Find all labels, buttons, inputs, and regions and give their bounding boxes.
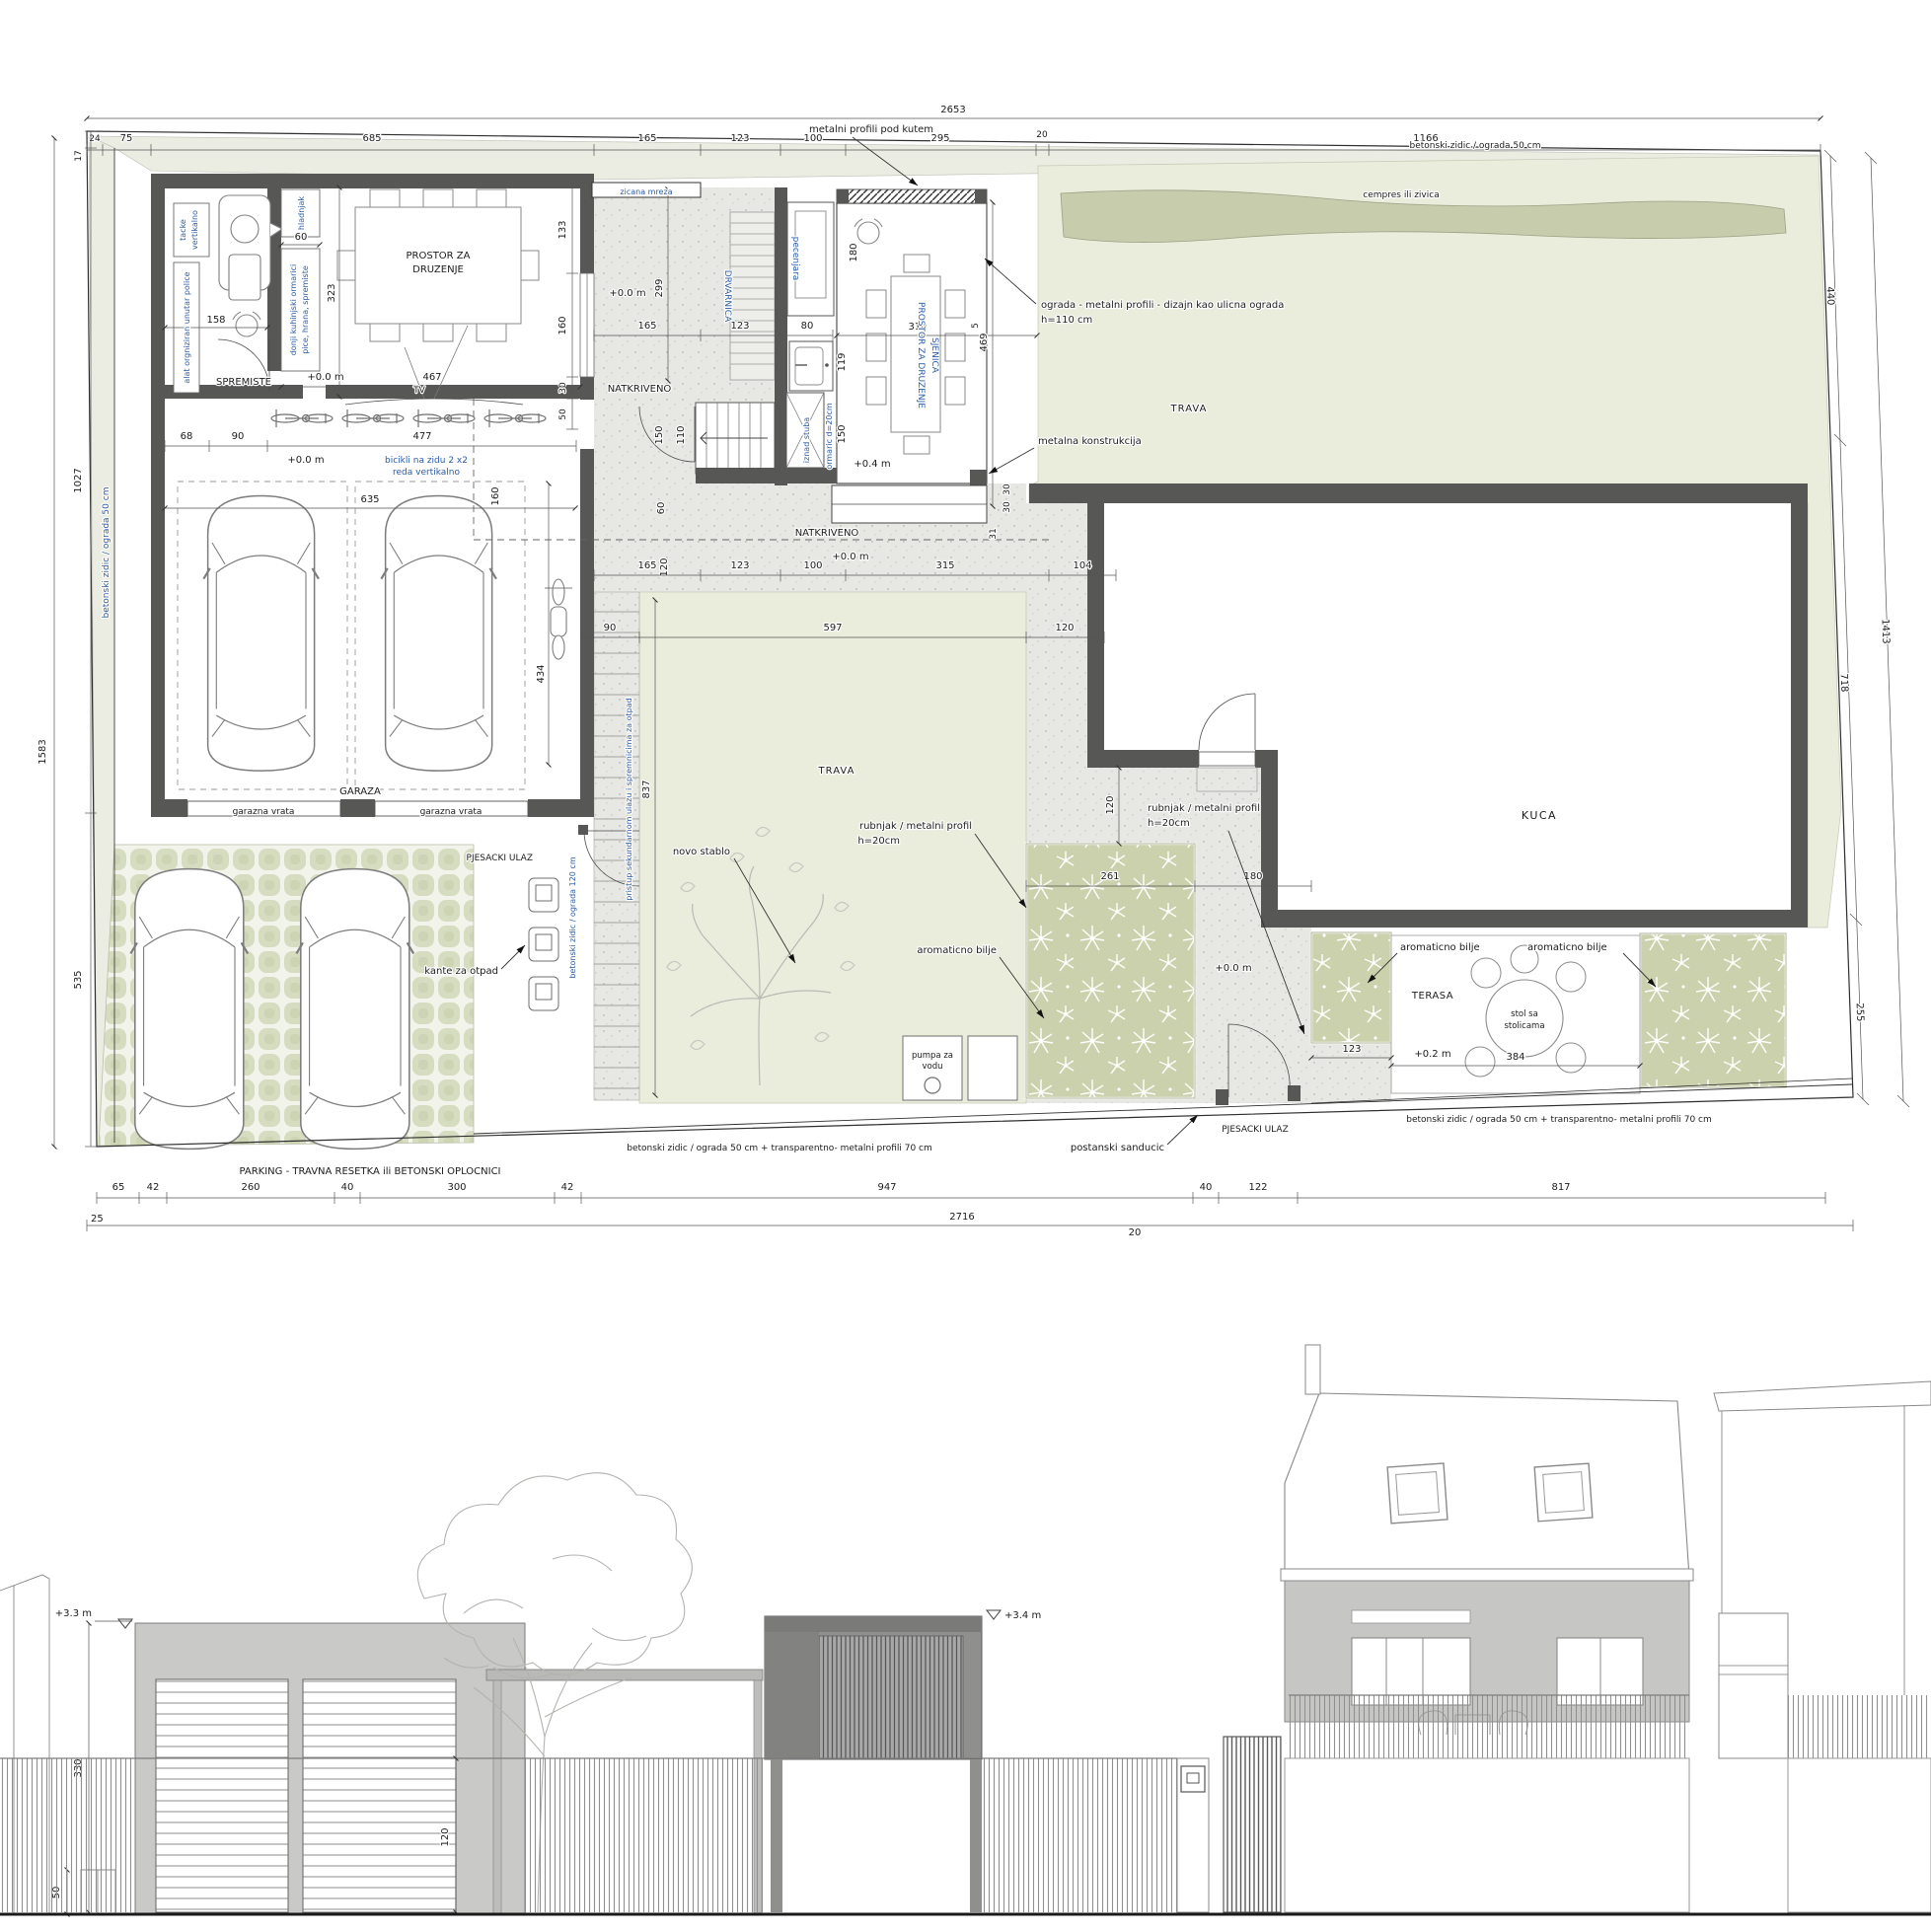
- dim: 120: [1105, 795, 1116, 814]
- annotation: vodu: [922, 1062, 942, 1072]
- annotation: TV: [412, 386, 425, 396]
- room-label: KUCA: [1522, 809, 1557, 822]
- dim: 315: [935, 560, 954, 571]
- dim: 467: [422, 372, 441, 383]
- dim: 80: [801, 321, 814, 332]
- annotation: garazna vrata: [233, 807, 295, 817]
- annotation: tacke: [179, 219, 187, 241]
- dim: 119: [837, 352, 848, 371]
- level-mark: +0.0 m: [609, 288, 645, 299]
- room-label: DRUZENJE: [412, 264, 464, 275]
- sjenica: [832, 189, 987, 523]
- annotation: pice, hrana, spremiste: [301, 265, 310, 354]
- dim: 90: [604, 623, 617, 633]
- dim: 123: [730, 321, 749, 332]
- garage-car-1: [203, 495, 319, 771]
- annotation: bicikli na zidu 2 x2: [385, 456, 468, 466]
- parking-area: [99, 845, 474, 1149]
- corner-post: [970, 470, 987, 485]
- dim: 5: [971, 323, 981, 329]
- dim: 20: [1036, 130, 1048, 140]
- dim: 60: [656, 502, 667, 515]
- room-label: TERASA: [1411, 991, 1453, 1002]
- dim: 90: [232, 431, 245, 442]
- garage-car-2: [381, 495, 496, 771]
- dim: 260: [241, 1182, 260, 1193]
- annotation: stolicama: [1504, 1021, 1544, 1031]
- bed-aromatic-2: [1311, 932, 1391, 1043]
- dim: 817: [1551, 1182, 1570, 1193]
- dim: 158: [206, 315, 225, 326]
- annotation: betonski zidic / ograda 50 cm + transpar…: [1406, 1115, 1712, 1125]
- house-elevation: [1281, 1345, 1693, 1912]
- dim: 295: [930, 133, 949, 144]
- level-mark: +0.4 m: [854, 459, 890, 470]
- dim: 255: [1854, 1003, 1866, 1021]
- dim: 434: [536, 664, 547, 683]
- annotation: aromaticno bilje: [1527, 942, 1607, 953]
- dim: 17: [74, 150, 84, 161]
- parked-car-2: [296, 869, 413, 1150]
- room-label: pecenjara: [790, 237, 800, 281]
- dim: 120: [659, 557, 670, 576]
- annotation: cempres ili zivica: [1363, 190, 1439, 200]
- dim: 1413: [1880, 619, 1892, 644]
- annotation: betonski zidic / ograda 120 cm: [568, 856, 577, 978]
- annotation: donji kuhinjski ormarici: [289, 264, 298, 356]
- room-label: NATKRIVENO: [795, 528, 859, 539]
- dim: 20: [1129, 1227, 1142, 1238]
- level-mark: +3.4 m: [1004, 1610, 1041, 1621]
- dim: 68: [181, 431, 193, 442]
- site-plan-and-elevation: 2653 24 75 685 165 123 100 295 20 1166 1…: [0, 0, 1931, 1932]
- room-label: SJENICA: [929, 337, 939, 374]
- annotation: PARKING - TRAVNA RESETKA ili BETONSKI OP…: [239, 1166, 500, 1177]
- dim: 837: [641, 780, 652, 798]
- annotation: postanski sanducic: [1071, 1143, 1164, 1153]
- dim: 384: [1506, 1052, 1524, 1063]
- neighbour-right: [1714, 1381, 1931, 1912]
- annotation: h=20cm: [857, 836, 900, 847]
- dim: 40: [1200, 1182, 1213, 1193]
- dim: 40: [341, 1182, 354, 1193]
- dim: 123: [730, 560, 749, 571]
- annotation: vertikalno: [190, 210, 199, 250]
- waste-bins: [529, 878, 558, 1010]
- dim: 2716: [949, 1212, 974, 1223]
- terrace-railing: [1289, 1695, 1689, 1758]
- dim: 160: [490, 486, 501, 505]
- street-elevation: 50 +3.3 m 330: [0, 1345, 1931, 1914]
- dim: 440: [1824, 286, 1836, 305]
- annotation: pumpa za: [912, 1051, 953, 1061]
- dim: 1583: [37, 739, 48, 764]
- dim: 30: [558, 382, 568, 394]
- annotation: hladnjak: [297, 196, 306, 230]
- annotation: stol sa: [1511, 1009, 1538, 1019]
- annotation: ormaric d=20cm: [825, 403, 834, 470]
- dim: 165: [637, 560, 656, 571]
- dim: 133: [557, 220, 568, 239]
- annotation: ograda - metalni profili - dizajn kao ul…: [1041, 300, 1284, 311]
- dim: 635: [360, 494, 379, 505]
- dim: 165: [637, 321, 656, 332]
- room-label: DRVARNICA: [722, 270, 732, 323]
- gate: [1224, 1737, 1281, 1912]
- water-pump: [903, 1036, 1017, 1100]
- drvarnica-stack: [730, 212, 775, 380]
- dim: 300: [447, 1182, 466, 1193]
- dim: 122: [1248, 1182, 1267, 1193]
- dim: 160: [557, 316, 568, 334]
- room-label: NATKRIVENO: [608, 384, 672, 395]
- annotation: aromaticno bilje: [1400, 942, 1480, 953]
- wall-center: [775, 187, 787, 485]
- room-label: GARAZA: [339, 786, 381, 797]
- room-label: PROSTOR ZA DRUZENJE: [916, 302, 926, 409]
- parked-car-1: [130, 869, 248, 1150]
- annotation: iznad stuba: [802, 417, 811, 463]
- level-mark: +0.0 m: [307, 372, 343, 383]
- roller-door-2: [303, 1679, 456, 1912]
- annotation: betonski zidic / ograda 50 cm: [102, 487, 111, 619]
- dim: 75: [120, 133, 133, 144]
- architectural-drawing: 2653 24 75 685 165 123 100 295 20 1166 1…: [0, 0, 1931, 1932]
- dim: 31: [989, 528, 999, 539]
- level-mark: +0.2 m: [1414, 1049, 1450, 1060]
- room-label: PROSTOR ZA: [407, 251, 471, 261]
- dim: 685: [362, 133, 381, 144]
- dim: 65: [112, 1182, 125, 1193]
- annotation: kante za otpad: [424, 966, 498, 977]
- dim: 42: [147, 1182, 160, 1193]
- annotation: rubnjak / metalni profil: [859, 821, 972, 832]
- dim: 1027: [73, 468, 84, 492]
- dim: 261: [1100, 871, 1119, 882]
- annotation: rubnjak / metalni profil: [1148, 803, 1260, 814]
- room-label: SPREMISTE: [216, 377, 271, 388]
- dim: 469: [979, 333, 990, 351]
- dim: 477: [412, 431, 431, 442]
- mailbox: [1181, 1766, 1205, 1792]
- dim: 2653: [940, 105, 965, 115]
- annotation: betonski zidic / ograda 50 cm: [1410, 141, 1541, 151]
- dim: 60: [295, 232, 308, 243]
- annotation: metalna konstrukcija: [1038, 436, 1142, 447]
- annotation: garazna vrata: [420, 807, 483, 817]
- dim: 947: [877, 1182, 896, 1193]
- dim: 30: [1003, 501, 1012, 513]
- annotation: betonski zidic / ograda 50 cm + transpar…: [627, 1144, 932, 1153]
- level-mark: +0.0 m: [287, 455, 324, 466]
- dim: 165: [637, 133, 656, 144]
- annotation: alat orgniziran unutar police: [183, 271, 191, 383]
- dim: 110: [676, 425, 687, 444]
- bed-aromatic-3: [1640, 933, 1786, 1087]
- site-plan: 2653 24 75 685 165 123 100 295 20 1166 1…: [0, 105, 1931, 1914]
- dim: 104: [1073, 560, 1091, 571]
- level-mark: +0.0 m: [832, 552, 868, 562]
- annotation: zicana mreza: [620, 187, 672, 196]
- dim: 535: [73, 970, 84, 989]
- dim: 718: [1838, 673, 1850, 692]
- dim: 299: [654, 278, 665, 297]
- level-mark: +3.3 m: [55, 1608, 92, 1619]
- dim: 120: [440, 1827, 451, 1846]
- annotation: aromaticno bilje: [917, 945, 997, 956]
- dim: 123: [730, 133, 749, 144]
- dim: 323: [327, 283, 337, 302]
- level-mark: +0.0 m: [1215, 963, 1251, 974]
- annotation: reda vertikalno: [393, 468, 460, 478]
- terrace-base-wall: [1285, 1758, 1689, 1912]
- dim: 150: [654, 425, 665, 444]
- slit-window: [1352, 1610, 1470, 1623]
- annotation: pristup sekundarnom ulazu i spremnicima …: [625, 698, 633, 900]
- dim: 25: [91, 1214, 104, 1225]
- dim: 100: [803, 560, 822, 571]
- metal-profile-strip: [837, 189, 987, 203]
- dim: 50: [558, 409, 568, 420]
- dim: 30: [1003, 483, 1012, 495]
- annotation: h=20cm: [1148, 818, 1190, 829]
- dim: 180: [1243, 871, 1262, 882]
- dim: 150: [837, 424, 848, 443]
- sink: [789, 341, 833, 391]
- dim: 42: [561, 1182, 574, 1193]
- dim: 597: [823, 623, 842, 633]
- room-label: TRAVA: [1170, 404, 1208, 414]
- annotation: metalni profili pod kutem: [809, 124, 933, 135]
- annotation: PJESACKI ULAZ: [467, 854, 533, 863]
- dim: 123: [1342, 1044, 1361, 1055]
- annotation: h=110 cm: [1041, 315, 1092, 326]
- chimney: [1305, 1345, 1320, 1394]
- room-label: TRAVA: [818, 766, 855, 777]
- annotation: novo stablo: [673, 847, 730, 857]
- annotation: PJESACKI ULAZ: [1222, 1125, 1288, 1135]
- roller-door-1: [156, 1679, 288, 1912]
- dim: 120: [1055, 623, 1074, 633]
- dim: 180: [849, 243, 859, 261]
